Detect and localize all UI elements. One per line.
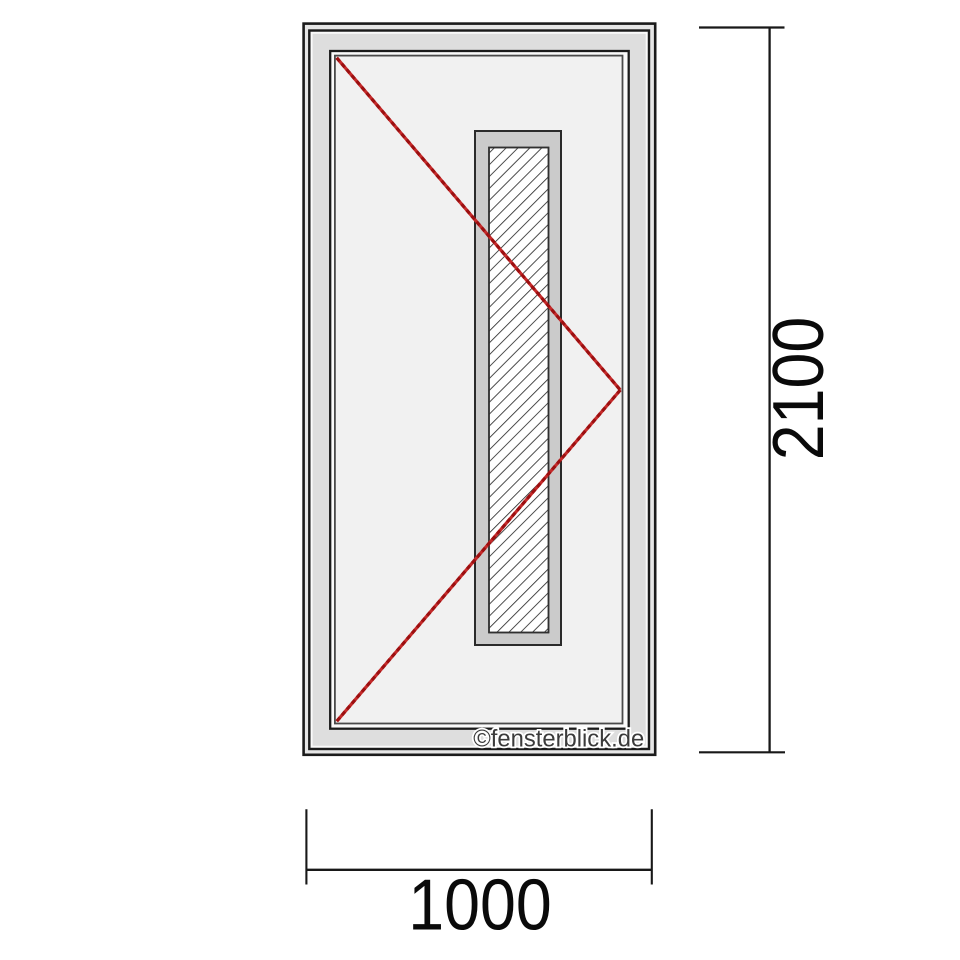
svg-text:1000: 1000	[408, 864, 551, 945]
svg-text:2100: 2100	[758, 317, 839, 460]
svg-text:©fensterblick.de: ©fensterblick.de	[473, 726, 644, 753]
